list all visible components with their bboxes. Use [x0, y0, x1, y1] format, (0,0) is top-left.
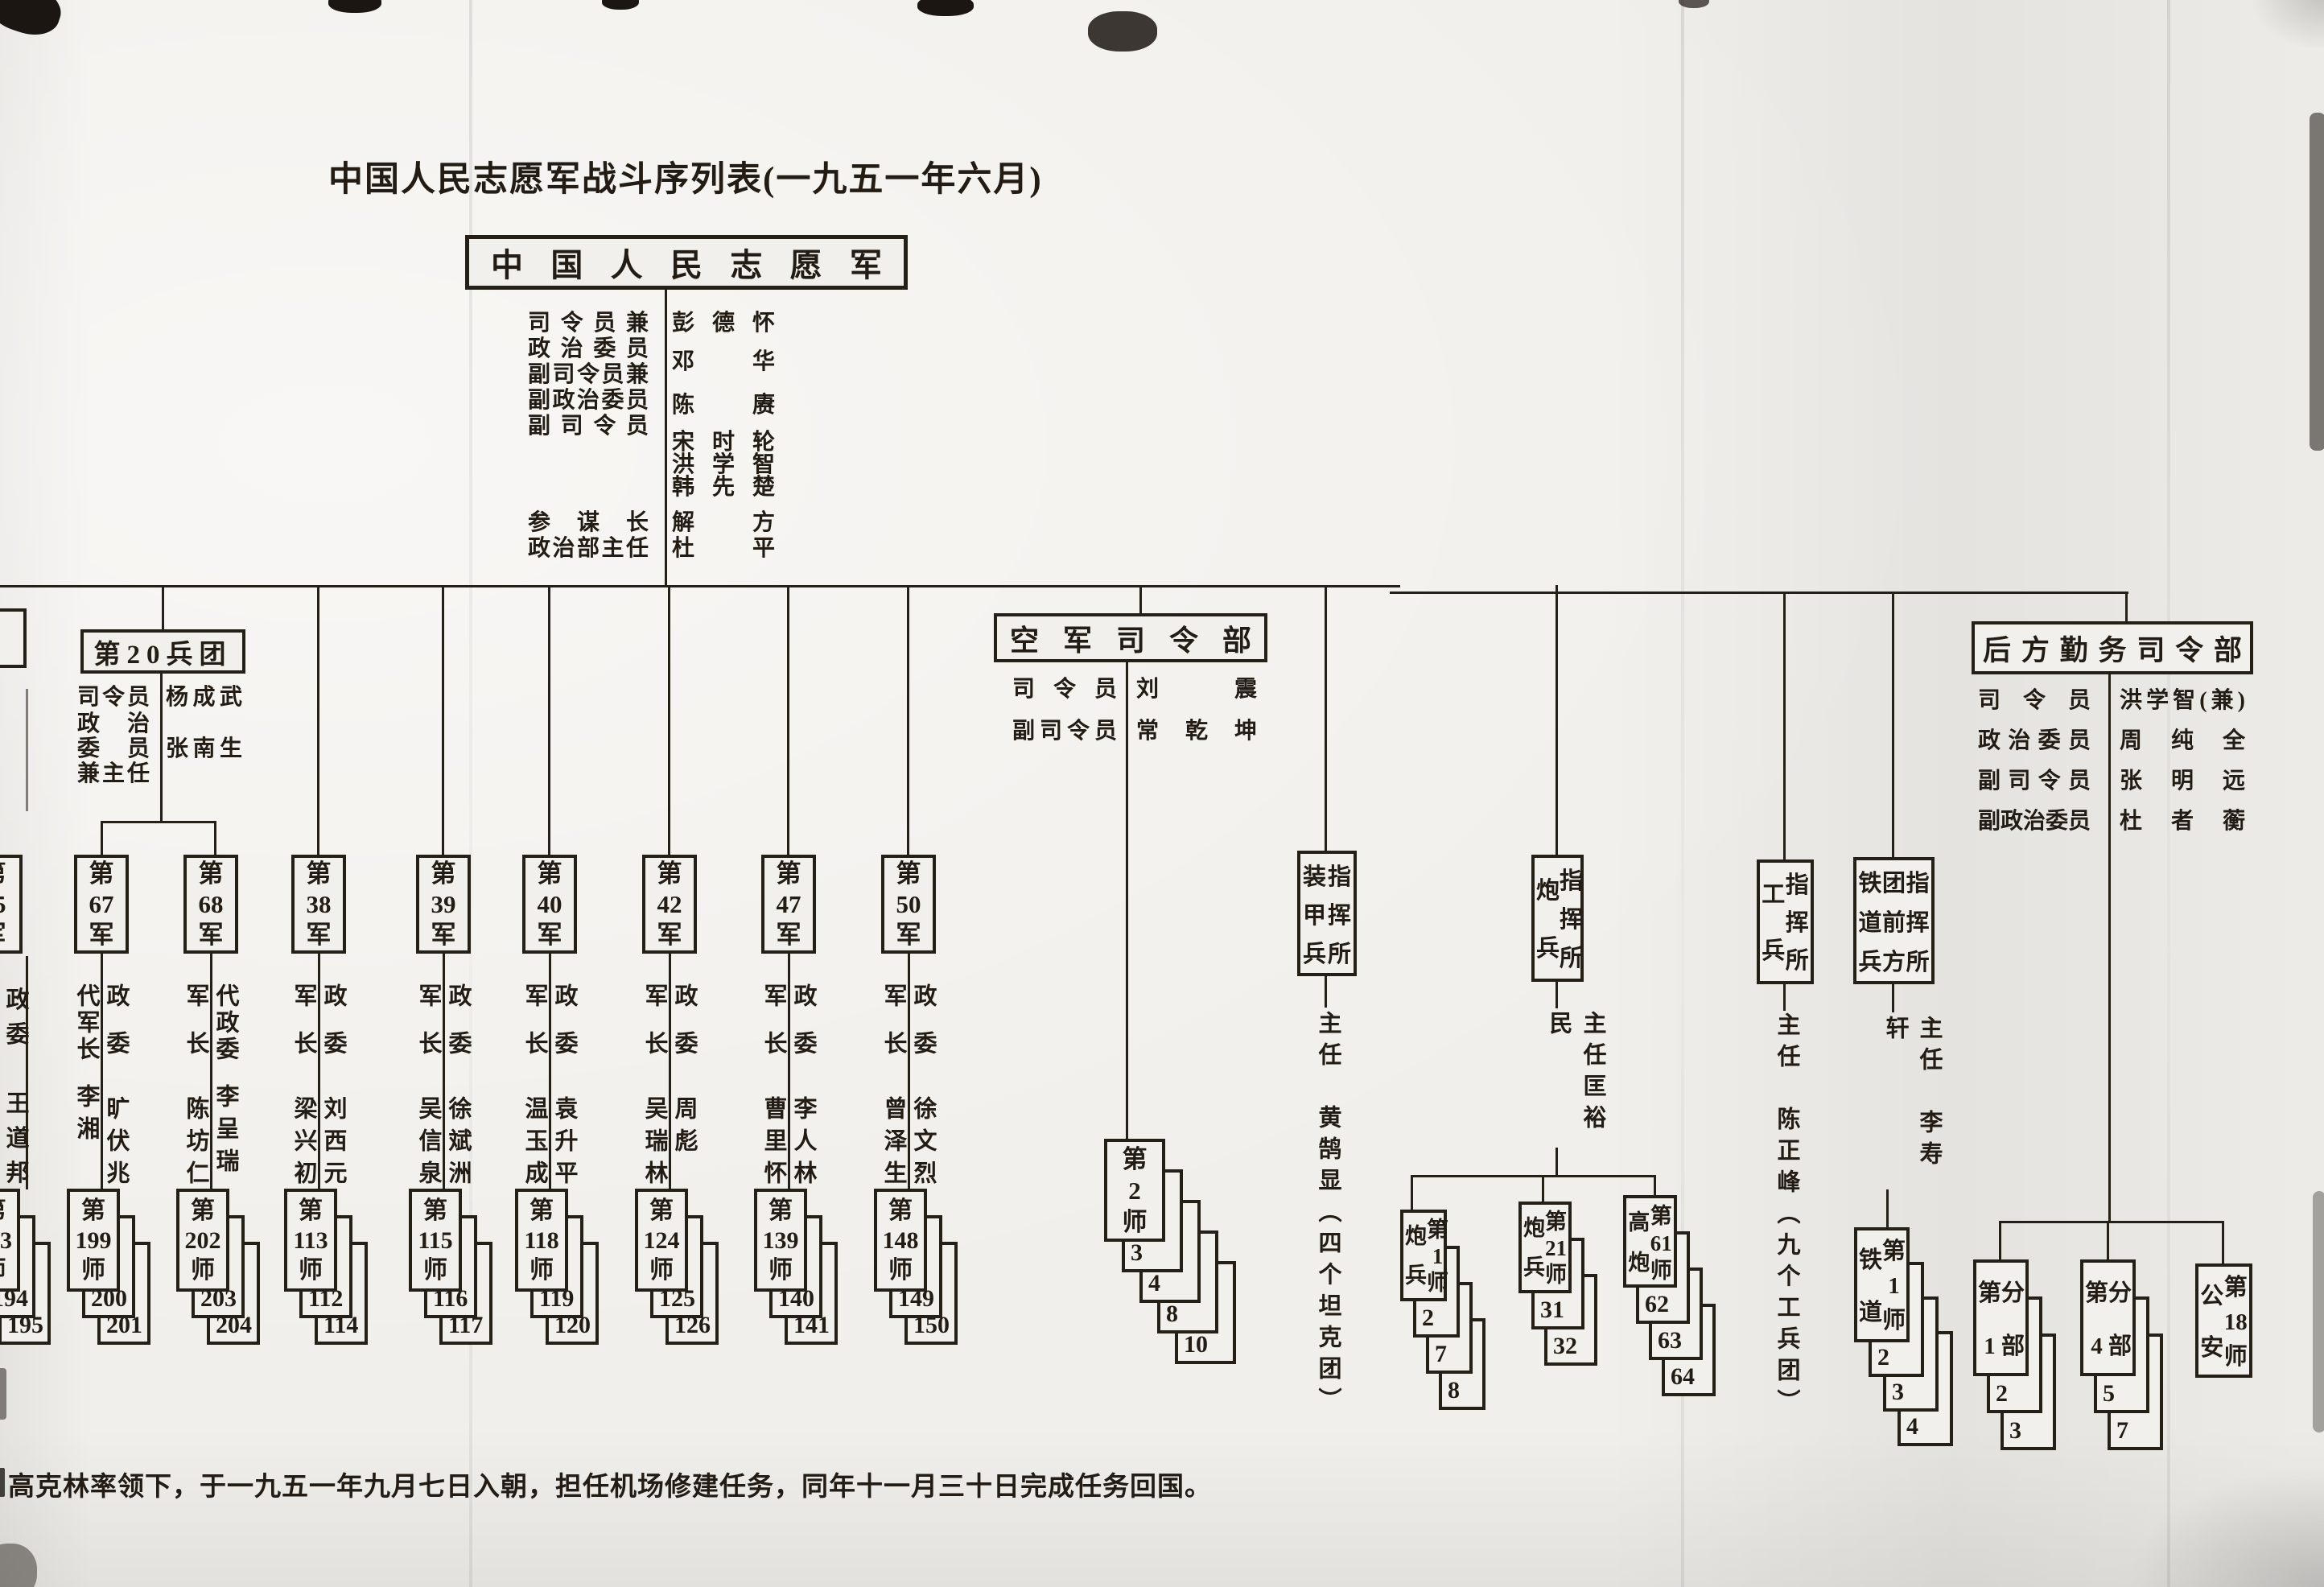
unit-box-col1: 第 1: [1978, 1267, 2001, 1369]
airforce-deputy-name: 常乾坤: [1136, 719, 1257, 744]
airforce-hq-label: 空军司令部: [1010, 617, 1251, 659]
scan-smudge: [328, 0, 381, 13]
connector-line: [2001, 1221, 2224, 1223]
hq-position-7: 政治部主任: [528, 536, 649, 562]
regiment-number: 32: [1553, 1333, 1577, 1360]
connector-line: [1999, 1221, 2001, 1261]
hq-political-dept-name: 杜平: [672, 536, 775, 562]
commissar-title: 政委: [445, 983, 471, 1078]
commander-title: 军长: [183, 983, 208, 1078]
hq-chief-of-staff-name: 解方: [672, 510, 775, 536]
engineer-box-col1: 工 兵: [1762, 867, 1786, 977]
hq-deputy-name: 宋时轮: [672, 431, 775, 454]
army-box-label: 第 68 军: [199, 859, 224, 950]
division-box-label: 第 118 师: [524, 1196, 558, 1285]
division-box-label: 第 139 师: [763, 1196, 799, 1285]
engineer-command-box: 工 兵 指 挥 所: [1757, 859, 1814, 984]
division-box-label: 第 199 师: [76, 1196, 112, 1285]
army-box-label: 第 67 军: [89, 859, 114, 950]
army65-commissar-column: 政 委 王 道 邦: [3, 983, 32, 1191]
division-box-label: 第 202 师: [185, 1196, 221, 1285]
scan-smudge: [2310, 113, 2324, 451]
scan-smudge: [0, 0, 67, 43]
commander-title: 军长: [641, 983, 667, 1078]
army-box-label: 第 39 军: [431, 859, 456, 950]
scan-smudge: [917, 0, 974, 16]
scan-smudge: [2313, 1191, 2324, 1432]
logistics-hq-label: 后方勤务司令部: [1983, 628, 2242, 669]
unit-box-col1: 第 4: [2085, 1267, 2108, 1369]
hq-deputy-name: 邓华: [672, 349, 775, 375]
logistics-position: 副司令员: [1978, 769, 2091, 794]
engineer-director-text: 主任 陈正峰（九个工兵团）: [1770, 1012, 1803, 1431]
commissar-name: 刘西元: [320, 1096, 346, 1193]
commander-name: 曹里怀: [760, 1096, 786, 1193]
corps20-position: 委员: [77, 736, 150, 762]
commander-name: 曾泽生: [880, 1096, 906, 1193]
hq-position-4: 副政治委员: [528, 388, 649, 414]
commander-name: 陈坊仁: [183, 1096, 208, 1193]
corps19-box-fragment: [0, 608, 27, 668]
connector-line: [1139, 585, 1142, 615]
regiment-number: 10: [1184, 1331, 1208, 1358]
engineer-box-col2: 指 挥 所: [1786, 867, 1810, 977]
unit-box-security18: 公 安 第 18 师: [2195, 1263, 2252, 1378]
division-box-col1: 炮 兵: [1523, 1209, 1545, 1286]
commissar-title: 政委: [910, 983, 936, 1078]
airforce-position: 司令员: [1012, 677, 1117, 703]
commissar-name: 李人林: [790, 1096, 816, 1193]
connector-line: [1325, 976, 1327, 1008]
regiment-number: 3: [2009, 1417, 2021, 1445]
connector-line: [1783, 592, 1786, 861]
hq-deputy-name: 洪学智: [672, 454, 775, 476]
connector-line: [1542, 1175, 1544, 1203]
army-box-47: 第 47 军: [761, 855, 816, 954]
army65-box-label: 第 65 军: [0, 859, 6, 950]
hq-deputy-name: 韩先楚: [672, 476, 775, 499]
regiment-number: 8: [1448, 1377, 1460, 1404]
armor-director-text: 主任 黄鹄显（四个坦克团）: [1311, 1011, 1345, 1429]
railway-box-col2: 团 前 方: [1882, 864, 1906, 977]
page-title: 中国人民志愿军战斗序列表(一九五一年六月): [328, 151, 1043, 201]
division-box-col2: 第 1 师: [1882, 1235, 1906, 1335]
unit-box-col2: 分 部: [2108, 1267, 2132, 1369]
scan-smudge: [0, 1544, 37, 1587]
army-box-label: 第 47 军: [777, 859, 801, 950]
regiment-number: 3: [1892, 1379, 1904, 1406]
connector-line: [214, 821, 216, 856]
cut-character-fragment: [0, 1468, 5, 1497]
division-box-label: 第 148 师: [883, 1196, 919, 1285]
corps20-box: 第20兵团: [80, 629, 245, 674]
armor-box-col1: 装 甲 兵: [1302, 858, 1327, 969]
commander-name: 李湘: [73, 1084, 99, 1148]
corps20-commander-name: 杨成武: [166, 685, 242, 711]
commissar-name: 李呈瑞: [212, 1084, 238, 1181]
commissar-title: 政委: [103, 983, 129, 1078]
regiment-number: 4: [1906, 1413, 1918, 1441]
army50-commissar-column: 政委徐文烈: [909, 983, 940, 1193]
commander-title: 军长: [290, 983, 316, 1078]
connector-trunk: [0, 585, 1400, 587]
army-box-50: 第 50 军: [881, 855, 936, 954]
army-box-label: 第 42 军: [657, 859, 682, 950]
connector-line: [2222, 1221, 2224, 1265]
connector-line: [2125, 592, 2128, 623]
connector-line: [907, 585, 909, 856]
commander-name: 温玉成: [521, 1096, 547, 1193]
scan-shadow-corner: [2124, 1465, 2324, 1587]
commander-title: 军长: [415, 983, 441, 1078]
army47-commissar-column: 政委李人林: [789, 983, 820, 1193]
footnote-text: 高克林率领下，于一九五一年九月七日入朝，担任机场修建任务，同年十一月三十日完成任…: [8, 1465, 1212, 1503]
corps20-position: 兼主任: [77, 761, 150, 787]
unit-box-col2: 分 部: [2001, 1267, 2025, 1369]
connector-line: [668, 585, 670, 856]
commissar-title: 政委: [671, 983, 697, 1078]
army68-commissar-column: 代政委李呈瑞: [212, 983, 242, 1181]
hq-position-2: 政治委员: [528, 336, 649, 362]
army-box-42: 第 42 军: [642, 855, 697, 954]
commissar-title: 政委: [551, 983, 577, 1078]
army-box-40: 第 40 军: [522, 855, 577, 954]
railway-director-text: 主任 李寿轩: [1878, 1016, 1946, 1201]
connector-line: [317, 585, 319, 856]
artillery-box-col1: 炮 兵: [1536, 862, 1560, 975]
hq-box-label: 中国人民志愿军: [491, 239, 882, 286]
commissar-name: 袁升平: [551, 1096, 577, 1193]
army65-box-fragment: 第 65 军: [0, 855, 23, 954]
connector-line: [26, 689, 28, 811]
regiment-number: 62: [1645, 1291, 1669, 1318]
regiment-number: 2: [1422, 1305, 1434, 1332]
logistics-commissar-name: 周纯全: [2120, 728, 2245, 754]
division-box-col2: 第 1 师: [1427, 1217, 1448, 1294]
logistics-position: 司令员: [1978, 688, 2091, 714]
connector-line: [1556, 585, 1558, 856]
connector-line: [1783, 984, 1786, 1011]
commander-title: 军长: [521, 983, 547, 1078]
army-box-label: 第 40 军: [538, 859, 562, 950]
connector-line: [1654, 1175, 1656, 1197]
army-box-38: 第 38 军: [291, 855, 346, 954]
scanned-orbat-chart: 中国人民志愿军战斗序列表(一九五一年六月) 中国人民志愿军 司令员兼 政治委员 …: [0, 0, 2324, 1587]
regiment-number: 8: [1166, 1301, 1178, 1328]
division-box-label: 第 2 师: [1123, 1144, 1148, 1238]
army39-commissar-column: 政委徐斌洲: [444, 983, 475, 1193]
hq-position-5: 副司令员: [528, 414, 649, 439]
artillery-command-box: 炮 兵 指 挥 所: [1531, 855, 1584, 982]
commissar-name: 徐文烈: [910, 1096, 936, 1193]
regiment-number: 7: [2116, 1417, 2128, 1445]
division-group-193: 194 195 第 193 师: [0, 1189, 20, 1292]
corps20-position: 政治: [77, 711, 150, 737]
connector-line: [102, 821, 216, 823]
commander-title: 代军长: [73, 983, 99, 1063]
connector-line: [1411, 1175, 1413, 1211]
scan-smudge: [1088, 11, 1157, 52]
regiment-number: 2: [1996, 1380, 2008, 1408]
commander-name: 梁兴初: [290, 1096, 316, 1193]
army-box-label: 第 38 军: [307, 859, 332, 950]
commander-name: 吴瑞林: [641, 1096, 667, 1193]
regiment-number: 5: [2103, 1380, 2115, 1408]
connector-line: [1556, 982, 1558, 1008]
connector-line: [548, 585, 550, 856]
commissar-title: 代政委: [212, 983, 238, 1063]
unit-box-col1: 公 安: [2200, 1271, 2224, 1371]
railway-box-col1: 铁 道 兵: [1858, 864, 1882, 977]
division-box-col2: 第 21 师: [1545, 1209, 1567, 1286]
scan-smudge: [602, 0, 639, 10]
airforce-position: 副司令员: [1012, 719, 1117, 744]
regiment-number: 7: [1435, 1341, 1447, 1368]
army42-commissar-column: 政委周彪: [670, 983, 701, 1160]
commander-name: 吴信泉: [415, 1096, 441, 1193]
connector-line: [1325, 585, 1327, 852]
corps20-commissar-name: 张南生: [166, 736, 242, 762]
scan-smudge: [0, 1368, 6, 1420]
hq-commander-name: 彭德怀: [672, 311, 775, 336]
regiment-number: 2: [1877, 1344, 1889, 1371]
connector-trunk: [1390, 592, 2128, 594]
connector-line: [2108, 674, 2111, 1221]
connector-line: [2107, 1221, 2109, 1261]
regiment-number: 63: [1658, 1327, 1682, 1354]
hq-deputy-name: 陈赓: [672, 393, 775, 418]
commander-title: 军长: [880, 983, 906, 1078]
scan-shadow-corner: [2253, 0, 2324, 48]
division-box-col2: 第 61 师: [1650, 1202, 1673, 1280]
armor-command-box: 装 甲 兵 指 挥 所: [1297, 851, 1357, 976]
army38-commissar-column: 政委刘西元: [319, 983, 350, 1193]
armor-box-col2: 指 挥 所: [1327, 858, 1352, 969]
airforce-hq-box: 空军司令部: [994, 613, 1267, 662]
division-box-col1: 炮 兵: [1405, 1217, 1427, 1294]
hq-position-6: 参谋长: [528, 510, 649, 536]
connector-line: [1892, 592, 1894, 859]
army-box-67: 第 67 军: [74, 855, 129, 954]
division-box-label: 第 124 师: [644, 1196, 680, 1285]
army-box-39: 第 39 军: [416, 855, 471, 954]
connector-line: [160, 674, 163, 822]
corps20-position: 司令员: [77, 685, 150, 711]
unit-box-col2: 第 18 师: [2224, 1271, 2248, 1371]
commissar-title: 政委: [790, 983, 816, 1078]
logistics-position: 副政治委员: [1978, 809, 2091, 835]
commander-title: 军长: [760, 983, 786, 1078]
division-box-label: 第 193 师: [0, 1196, 12, 1285]
logistics-hq-box: 后方勤务司令部: [1972, 621, 2253, 674]
commissar-title: 政委: [320, 983, 346, 1078]
railway-command-box: 铁 道 兵 团 前 方 指 挥 所: [1853, 857, 1935, 984]
division-box-label: 第 113 师: [293, 1196, 328, 1285]
corps20-box-label: 第20兵团: [94, 633, 233, 671]
connector-line: [162, 585, 164, 631]
commissar-name: 周彪: [671, 1096, 697, 1160]
logistics-position: 政治委员: [1978, 728, 2091, 754]
connector-line: [665, 288, 667, 587]
logistics-deputy-commissar-name: 杜者蘅: [2120, 809, 2245, 835]
connector-line: [787, 585, 789, 856]
division-box-col1: 铁 道: [1859, 1235, 1882, 1335]
artillery-box-col2: 指 挥 所: [1560, 862, 1583, 975]
army40-commissar-column: 政委袁升平: [550, 983, 581, 1193]
commissar-name: 徐斌洲: [445, 1096, 471, 1193]
army67-commissar-column: 政委旷伏兆: [102, 983, 133, 1193]
army-box-68: 第 68 军: [183, 855, 238, 954]
airforce-commander-name: 刘震: [1136, 677, 1257, 703]
regiment-number: 4: [1148, 1270, 1160, 1297]
regiment-number: 64: [1671, 1363, 1695, 1391]
railway-box-col3: 指 挥 所: [1906, 864, 1930, 977]
hq-position-1: 司令员兼: [528, 311, 649, 336]
connector-line: [101, 821, 103, 856]
hq-box: 中国人民志愿军: [465, 235, 908, 290]
division-box-col1: 高 炮: [1628, 1202, 1650, 1280]
division-box-label: 第 115 师: [418, 1196, 452, 1285]
regiment-number: 3: [1131, 1239, 1143, 1267]
army-box-label: 第 50 军: [896, 859, 921, 950]
regiment-number: 31: [1540, 1296, 1564, 1324]
connector-line: [1412, 1175, 1656, 1177]
commissar-name: 旷伏兆: [103, 1096, 129, 1193]
connector-line: [442, 585, 444, 856]
logistics-commander-name: 洪学智(兼): [2120, 688, 2245, 714]
artillery-director-text: 主任匡裕民: [1542, 1011, 1609, 1156]
hq-position-3: 副司令员兼: [528, 362, 649, 388]
connector-line: [1892, 984, 1894, 1012]
connector-line: [1126, 662, 1128, 1140]
logistics-deputy-name: 张明远: [2120, 769, 2245, 794]
